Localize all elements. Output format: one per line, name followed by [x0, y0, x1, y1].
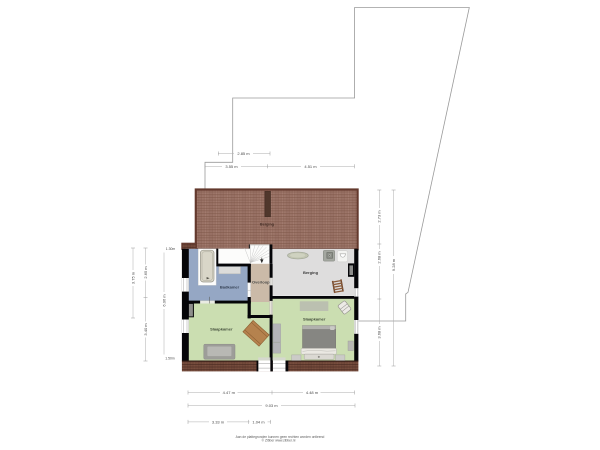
svg-text:1.50m: 1.50m	[165, 357, 175, 361]
svg-text:4.51 m: 4.51 m	[304, 164, 317, 169]
svg-text:6.06 m: 6.06 m	[161, 294, 166, 307]
svg-text:Berging: Berging	[260, 223, 274, 227]
svg-text:Badkamer: Badkamer	[220, 285, 240, 290]
svg-text:2.85 m: 2.85 m	[237, 151, 250, 156]
svg-text:Slaapkamer: Slaapkamer	[303, 316, 326, 321]
svg-text:Overloop: Overloop	[252, 279, 270, 284]
svg-text:4.47 m: 4.47 m	[223, 390, 236, 395]
svg-text:3.55 m: 3.55 m	[225, 164, 238, 169]
svg-text:3.68 m: 3.68 m	[377, 326, 382, 339]
svg-text:3.33 m: 3.33 m	[212, 419, 225, 424]
svg-text:1.04 m: 1.04 m	[252, 419, 265, 424]
svg-text:© Zibber www.zibber.nl: © Zibber www.zibber.nl	[262, 438, 296, 442]
svg-text:4.48 m: 4.48 m	[306, 390, 319, 395]
svg-text:1.30m: 1.30m	[166, 247, 176, 251]
svg-text:3.75 m: 3.75 m	[130, 271, 135, 284]
svg-text:2.73 m: 2.73 m	[377, 210, 382, 223]
svg-text:Slaapkamer: Slaapkamer	[210, 327, 233, 332]
svg-text:2.65 m: 2.65 m	[143, 266, 148, 279]
svg-text:3.40 m: 3.40 m	[143, 323, 148, 336]
svg-text:2.68 m: 2.68 m	[377, 251, 382, 264]
svg-text:Berging: Berging	[303, 270, 319, 275]
svg-text:9.03 m: 9.03 m	[265, 403, 278, 408]
svg-text:9.28 m: 9.28 m	[391, 258, 396, 271]
